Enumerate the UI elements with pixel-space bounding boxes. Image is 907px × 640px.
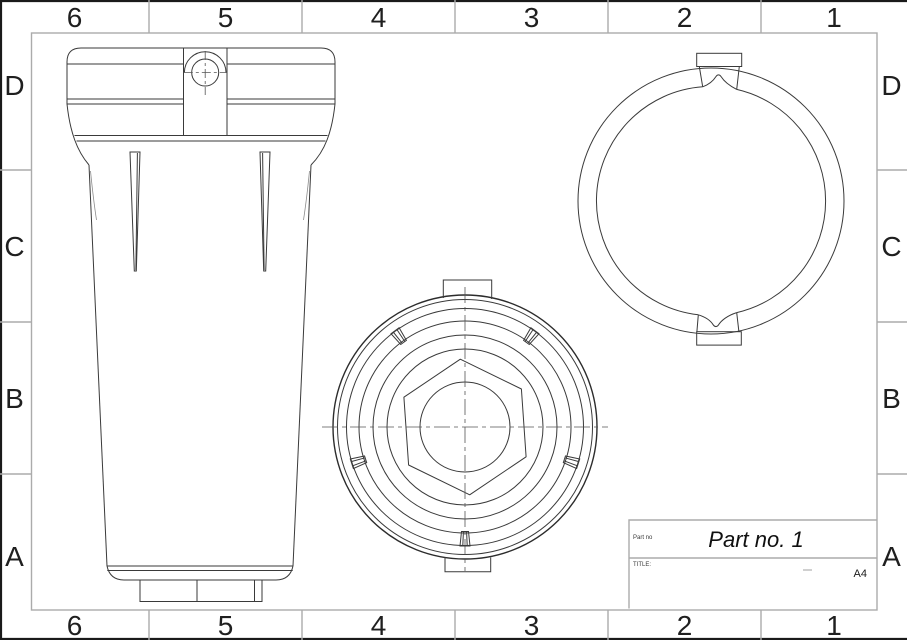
ring-outer-circle: [578, 68, 844, 334]
column-ticks-bottom: [149, 610, 761, 640]
fin-right: [260, 152, 270, 271]
zone-label-col-top-3: 3: [524, 2, 540, 33]
cap-shoulder-right: [311, 104, 335, 165]
zone-label-col-bottom-4: 4: [371, 610, 387, 640]
zone-label-col-bottom-6: 6: [67, 610, 83, 640]
ring-tab-top: [697, 53, 742, 66]
ring-inner-arc-left: [596, 87, 702, 315]
zone-label-row-right-C: C: [881, 231, 901, 262]
zone-label-col-bottom-1: 1: [826, 610, 842, 640]
ring-inner-arc-right: [737, 89, 826, 312]
top-view: [578, 53, 844, 345]
ring-tab-top-slant-right: [737, 67, 740, 90]
zone-label-col-bottom-5: 5: [218, 610, 234, 640]
ring-tab-bottom-slant-right: [737, 313, 739, 332]
zone-label-row-right-A: A: [882, 541, 901, 572]
zone-label-col-bottom-3: 3: [524, 610, 540, 640]
fin-left: [130, 152, 140, 271]
zone-label-row-right-D: D: [881, 70, 901, 101]
row-ticks-right: [877, 170, 907, 474]
zone-label-col-top-2: 2: [677, 2, 693, 33]
cap-outline: [67, 48, 335, 104]
body-edge-left: [89, 165, 107, 566]
zone-label-col-top-6: 6: [67, 2, 83, 33]
column-ticks-top: [149, 0, 761, 33]
drawing-sheet: 6 5 4 3 2 1 6 5 4 3 2 1 D C B A D C B A: [0, 0, 907, 640]
sheet-size-label: A4: [854, 568, 867, 580]
rib-upper-left: [391, 328, 408, 346]
zone-label-row-left-C: C: [4, 231, 24, 262]
zone-label-row-left-D: D: [4, 70, 24, 101]
zone-label-col-top-4: 4: [371, 2, 387, 33]
title-block: Part no Part no. 1 TITLE: A4: [629, 520, 877, 609]
drawing-canvas: 6 5 4 3 2 1 6 5 4 3 2 1 D C B A D C B A: [0, 0, 907, 640]
rib-upper-right: [522, 328, 539, 346]
part-no-value: Part no. 1: [708, 527, 803, 552]
mount-boss: [184, 48, 228, 136]
zone-label-col-top-5: 5: [218, 2, 234, 33]
zone-label-row-left-A: A: [5, 541, 24, 572]
body-edge-right: [293, 165, 311, 566]
bottom-view: [322, 280, 608, 572]
part-no-label: Part no: [633, 535, 653, 541]
cap-shoulder-left: [67, 104, 89, 165]
front-view: [67, 48, 335, 602]
zone-label-row-right-B: B: [882, 383, 901, 414]
zone-label-row-left-B: B: [5, 383, 24, 414]
ring-notch-top: [703, 75, 737, 90]
zone-label-col-bottom-2: 2: [677, 610, 693, 640]
rib-lower-right: [563, 455, 580, 469]
ring-notch-bottom: [698, 313, 736, 327]
title-label: TITLE:: [633, 562, 651, 568]
ring-tab-top-slant-left: [699, 67, 702, 87]
ring-tab-bottom-slant-left: [697, 315, 698, 332]
zone-label-col-top-1: 1: [826, 2, 842, 33]
bowl-bottom-outline: [107, 566, 293, 580]
bottom-foot: [140, 580, 262, 602]
side-fins: [130, 152, 270, 271]
row-ticks-left: [0, 170, 32, 474]
rib-lower-left: [350, 455, 367, 469]
